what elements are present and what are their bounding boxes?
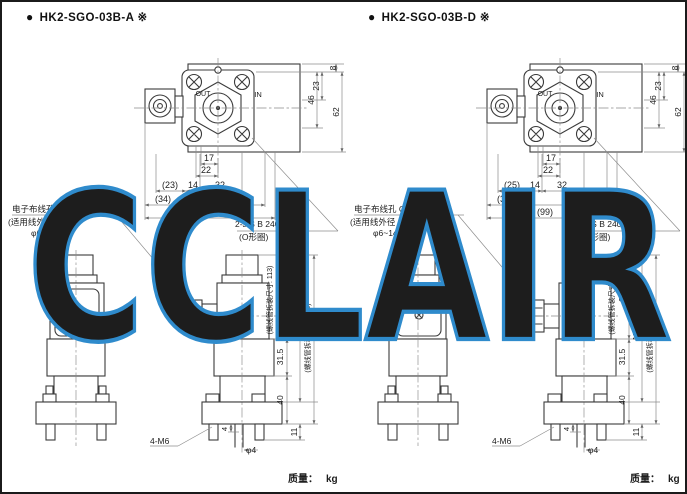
dim-h2: 31.5 — [617, 348, 627, 365]
mass-label: 质量： — [288, 472, 318, 485]
model-a-title: ●HK2-SGO-03B-A ※ — [26, 10, 148, 24]
oring-note-line2: (O形圈) — [239, 232, 268, 242]
dim-row2-b: 63 — [220, 194, 230, 204]
bolt-label: 4-M6 — [150, 436, 170, 446]
port-out-label: OUT — [538, 91, 554, 98]
dim-row1-b: 14 — [530, 180, 540, 190]
wiring-note-line2: (适用线外径 — [8, 217, 54, 227]
model-a-drawing: OUT IN 8 23 46 62 17 22 (23) 14 32 (34) … — [6, 54, 346, 494]
dim-row2-a: (36) — [497, 194, 513, 204]
dim-h3: 40 — [617, 395, 627, 405]
mass-unit: kg — [668, 474, 680, 485]
dim-pin4: 4 — [562, 427, 571, 431]
valve-drawing-geometry — [354, 58, 687, 454]
model-a-section: ●HK2-SGO-03B-A ※ OUT IN 8 23 46 62 17 22… — [6, 8, 346, 494]
dim-row3: (99) — [537, 207, 553, 217]
dim-row1-c: 32 — [215, 180, 225, 190]
oring-note-line1: 2-JIS B 2401-1AP9 — [577, 219, 650, 229]
dim-h4: 11 — [289, 427, 299, 436]
wiring-note-line2: (适用线外径 — [350, 217, 396, 227]
drain-label: φ4 — [588, 445, 599, 455]
dim-62: 62 — [673, 107, 683, 117]
dim-8: 8 — [670, 65, 680, 70]
dim-row2-a: (34) — [155, 194, 171, 204]
dim-h1: 66.5 — [275, 288, 285, 305]
datasheet-page: ●HK2-SGO-03B-A ※ OUT IN 8 23 46 62 17 22… — [0, 0, 687, 494]
mass-unit: kg — [326, 474, 338, 485]
bullet-icon: ● — [368, 10, 376, 24]
port-in-label: IN — [254, 90, 262, 99]
oring-note-line1: 2-JIS B 2401-1AP9 — [235, 219, 308, 229]
dim-22: 22 — [201, 165, 211, 175]
solenoid-removal-dim-inner: (螺线管拆装尺寸: 113) — [265, 266, 274, 335]
model-d-code: HK2-SGO-03B-D ※ — [382, 12, 490, 24]
mass-label: 质量： — [630, 472, 660, 485]
dim-h1: 80 — [617, 292, 627, 302]
dim-pin4: 4 — [220, 427, 229, 431]
model-d-section: ●HK2-SGO-03B-D ※ OUT IN 8 23 46 62 17 22… — [348, 8, 687, 494]
model-d-title: ●HK2-SGO-03B-D ※ — [368, 10, 490, 24]
port-in-label: IN — [596, 90, 604, 99]
dim-62: 62 — [331, 107, 341, 117]
dim-htotal: 138 — [289, 323, 299, 337]
dim-h4: 11 — [631, 427, 641, 436]
wiring-note-line3: φ6~14) — [31, 228, 59, 238]
solenoid-removal-dim-outer: (螺线管拆装尺寸: 212) — [645, 303, 654, 372]
dim-htotal: 151.5 — [631, 319, 641, 341]
wiring-note-line1: 电子布线孔 G1/2 — [12, 204, 76, 214]
valve-drawing-geometry — [12, 58, 346, 454]
dim-row1-a: (23) — [162, 180, 178, 190]
dim-row2-b: 63 — [562, 194, 572, 204]
oring-note-line2: (O形圈) — [581, 232, 610, 242]
dim-17: 17 — [204, 153, 214, 163]
bolt-label: 4-M6 — [492, 436, 512, 446]
dim-46: 46 — [306, 95, 316, 105]
solenoid-removal-dim-inner: (螺线管拆装尺寸: 140) — [607, 265, 616, 334]
dim-23: 23 — [653, 81, 663, 91]
dim-row3: (97) — [195, 207, 211, 217]
dim-h3: 40 — [275, 395, 285, 405]
wiring-note-line1: 电子布线孔 G1/2 — [354, 204, 418, 214]
drain-label: φ4 — [246, 445, 257, 455]
port-out-label: OUT — [196, 91, 212, 98]
dim-17: 17 — [546, 153, 556, 163]
bullet-icon: ● — [26, 10, 34, 24]
dim-row1-c: 32 — [557, 180, 567, 190]
solenoid-removal-dim-outer: (螺线管拆装尺寸: 185) — [303, 303, 312, 372]
model-d-drawing: OUT IN 8 23 46 62 17 22 (25) 14 32 (36) … — [348, 54, 687, 494]
dim-row1-b: 14 — [188, 180, 198, 190]
dim-23: 23 — [311, 81, 321, 91]
dim-46: 46 — [648, 95, 658, 105]
model-a-code: HK2-SGO-03B-A ※ — [40, 12, 148, 24]
dim-row1-a: (25) — [504, 180, 520, 190]
dim-h2: 31.5 — [275, 348, 285, 365]
wiring-note-line3: φ6~14) — [373, 228, 401, 238]
dim-8: 8 — [328, 65, 338, 70]
dim-22: 22 — [543, 165, 553, 175]
